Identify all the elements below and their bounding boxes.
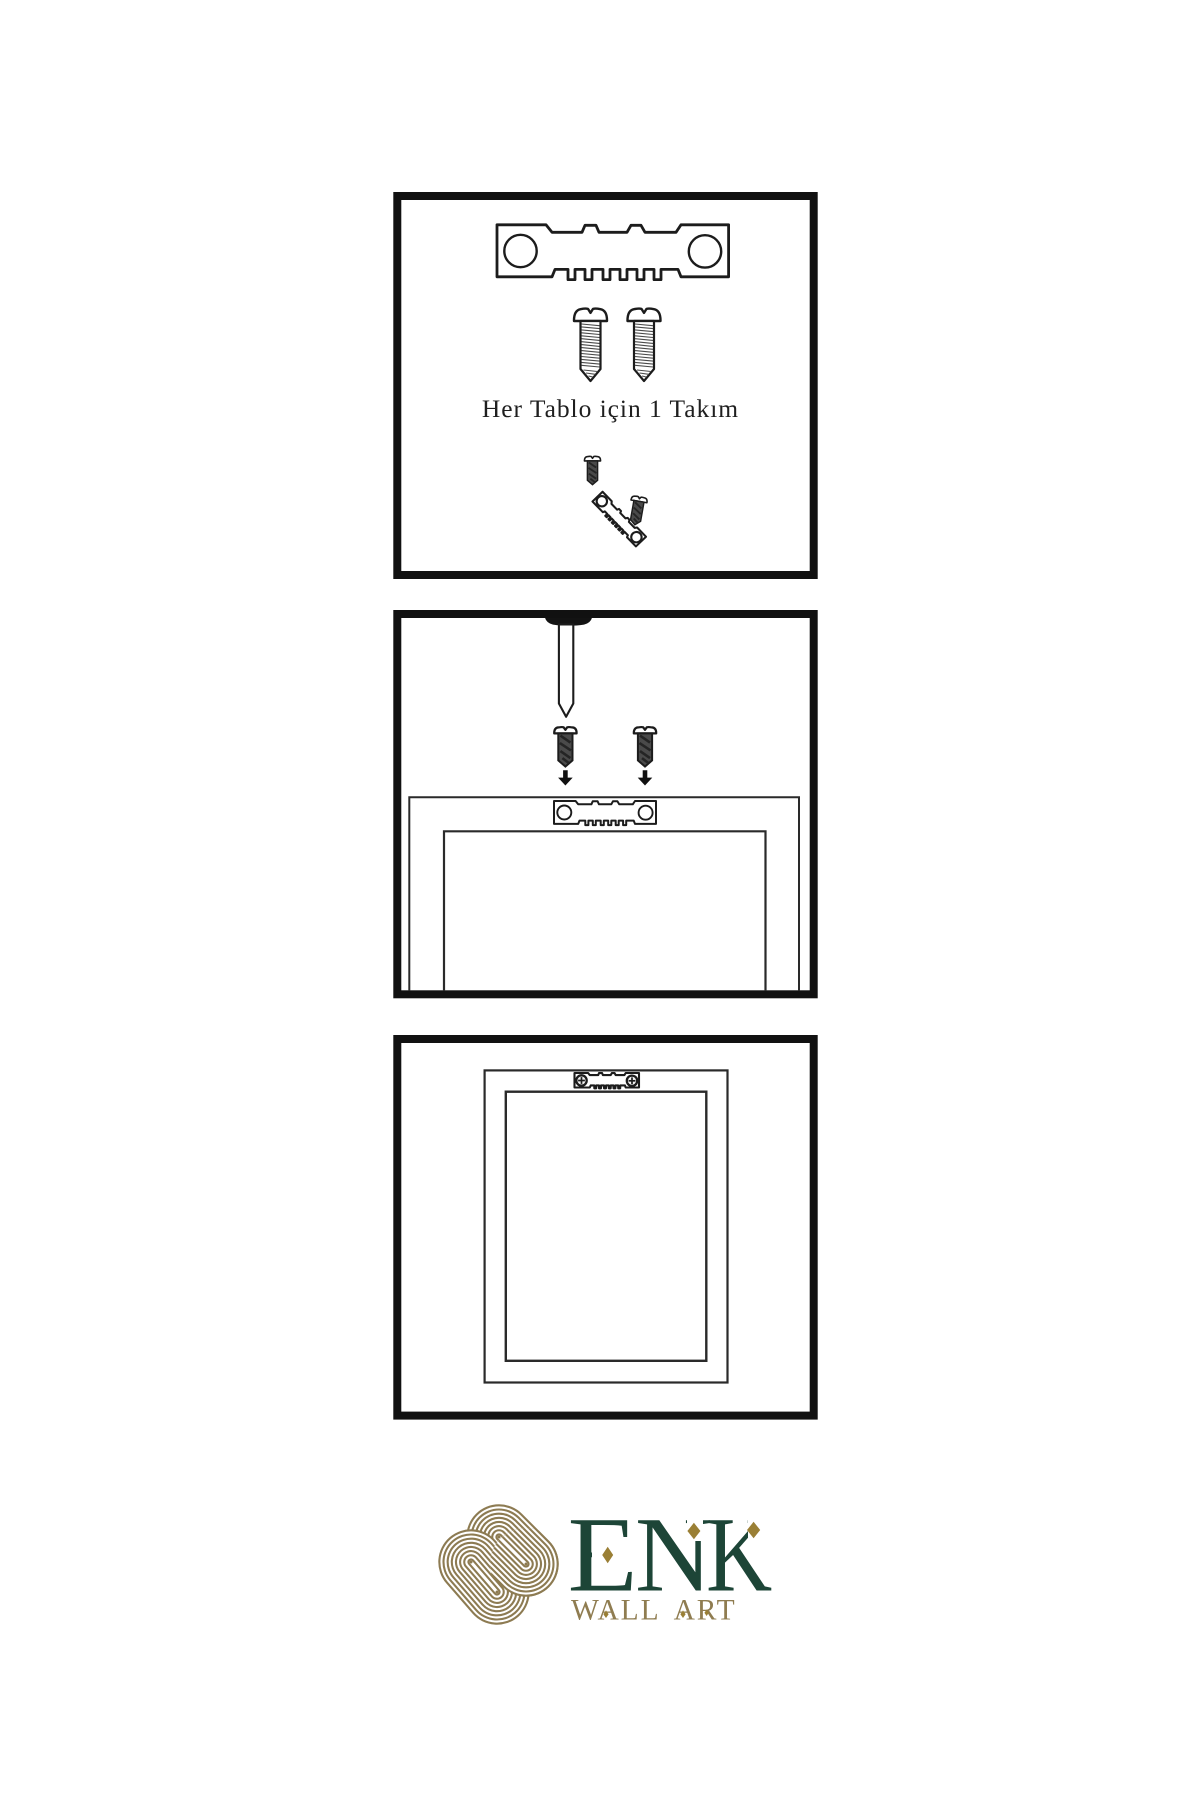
- svg-text:Her Tablo için 1 Takım: Her Tablo için 1 Takım: [482, 394, 739, 423]
- svg-text:WALL ART: WALL ART: [571, 1595, 737, 1627]
